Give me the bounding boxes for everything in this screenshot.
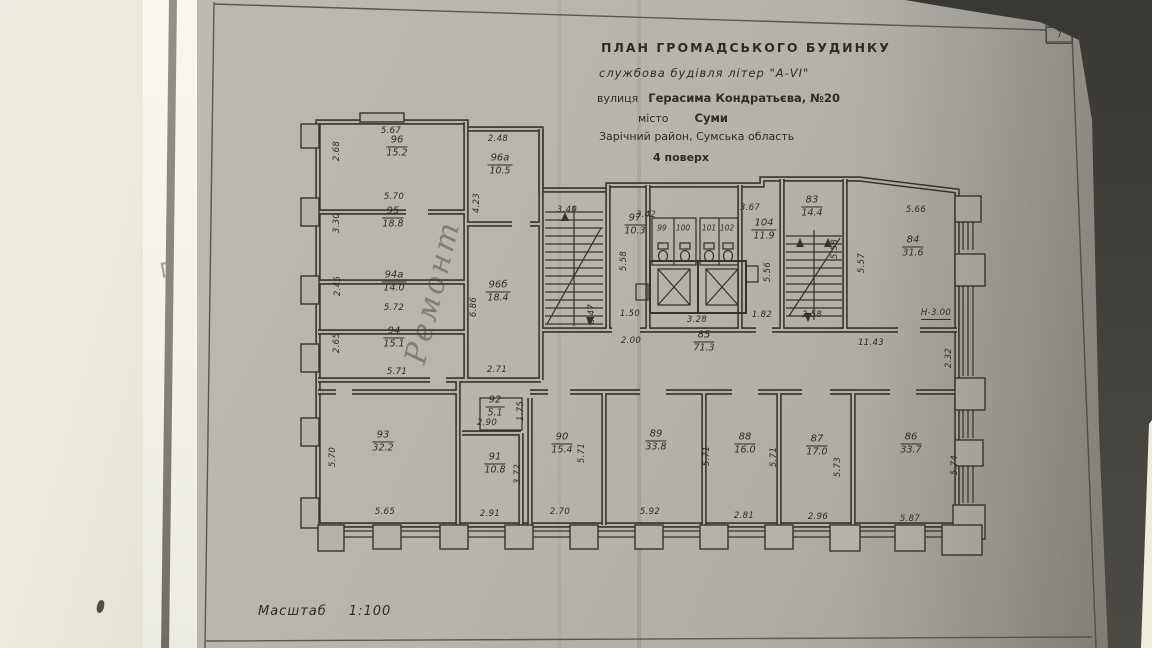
dimension-label: 3.40 xyxy=(557,205,577,215)
room-area: 31.6 xyxy=(902,247,923,258)
room-area: 10.3 xyxy=(624,225,645,236)
room-label: 96б18.4 xyxy=(486,280,511,303)
room-number: 83 xyxy=(801,195,822,207)
room-area: 71.3 xyxy=(693,342,714,353)
dimension-label: 4.23 xyxy=(472,193,482,213)
plan-subtitle: службова будівля літер "А-VI" xyxy=(599,66,809,80)
dimension-label: 2.91 xyxy=(480,509,500,519)
room-area: 33.8 xyxy=(645,441,666,452)
room-area: 17.0 xyxy=(806,446,827,457)
room-number: 88 xyxy=(734,432,755,444)
room-area: 15.4 xyxy=(551,444,572,455)
room-label: 8816.0 xyxy=(734,432,755,455)
room-area: 14.0 xyxy=(382,282,407,293)
dimension-label: 5.70 xyxy=(328,447,338,467)
scale-note: Масштаб1:100 xyxy=(258,604,391,619)
district-line: Зарічний район, Сумська область xyxy=(599,130,794,143)
dimension-label: 5.71 xyxy=(577,443,587,463)
room-area: 5.1 xyxy=(486,407,505,418)
room-label: 8314.4 xyxy=(801,195,822,218)
floor-line: 4 поверх xyxy=(653,151,709,164)
wc-room-number: 101 xyxy=(702,224,716,233)
dimension-label: 2.96 xyxy=(808,512,828,522)
room-label: 9332.2 xyxy=(372,430,393,453)
dimension-label: 2.45 xyxy=(333,276,343,296)
dimension-label: 5.57 xyxy=(857,253,867,273)
room-area: 10.5 xyxy=(488,165,513,176)
city-value: Суми xyxy=(695,111,728,125)
room-number: 86 xyxy=(900,432,921,444)
dimension-label: 2.65 xyxy=(332,333,342,353)
dimension-label: 3.30 xyxy=(332,213,342,233)
dimension-label: 8.47 xyxy=(587,304,597,324)
dimension-label: 1.82 xyxy=(752,310,772,320)
room-label: 9518.8 xyxy=(382,206,403,229)
room-area: 18.8 xyxy=(382,218,403,229)
room-number: 96а xyxy=(488,153,513,165)
room-number: 96б xyxy=(486,280,511,292)
room-area: 16.0 xyxy=(734,444,755,455)
table-surface-left xyxy=(0,0,143,648)
city-line: містоСуми xyxy=(638,111,728,125)
street-label: вулиця xyxy=(597,92,638,105)
wc-room-number: 100 xyxy=(676,224,690,233)
room-number: 90 xyxy=(551,432,572,444)
dimension-label: 5.71 xyxy=(769,447,779,467)
dimension-label: 2.00 xyxy=(621,336,641,346)
dimension-label: 5.71 xyxy=(387,367,407,377)
dimension-label: 5.71 xyxy=(702,446,712,466)
dimension-label: 5.74 xyxy=(950,455,960,475)
street-value: Герасима Кондратьєва, №20 xyxy=(648,91,840,105)
dimension-label: 3.67 xyxy=(740,203,760,213)
dimension-label: 2.71 xyxy=(487,365,507,375)
plan-title: ПЛАН ГРОМАДСЬКОГО БУДИНКУ xyxy=(601,40,891,55)
dimension-label: 5.67 xyxy=(381,126,401,136)
dimension-label: 1.50 xyxy=(620,309,640,319)
dimension-label: H-3.00 xyxy=(921,308,951,320)
city-label: місто xyxy=(638,112,669,125)
room-number: 87 xyxy=(806,434,827,446)
dimension-label: 11.43 xyxy=(858,338,884,348)
dimension-label: 2.81 xyxy=(734,511,754,521)
dimension-label: 3.42 xyxy=(636,210,656,220)
room-label: 8633.7 xyxy=(900,432,921,455)
room-number: 89 xyxy=(645,429,666,441)
room-label: 8933.8 xyxy=(645,429,666,452)
corner-tab: 7 xyxy=(1046,27,1073,44)
dimension-label: 5.65 xyxy=(375,507,395,517)
dimension-label: 5.73 xyxy=(833,457,843,477)
room-label: 10411.9 xyxy=(751,218,776,241)
dimension-label: 6.86 xyxy=(469,297,479,317)
dimension-label: 5.87 xyxy=(900,514,920,524)
room-number: 95 xyxy=(382,206,403,218)
dimension-label: 5.56 xyxy=(763,262,773,282)
room-number: 92 xyxy=(486,395,505,407)
room-area: 11.9 xyxy=(751,230,776,241)
room-area: 33.7 xyxy=(900,444,921,455)
dimension-label: 2.70 xyxy=(550,507,570,517)
room-number: 84 xyxy=(902,235,923,247)
dimension-label: 2.48 xyxy=(488,134,508,144)
dimension-label: 5.70 xyxy=(384,192,404,202)
room-number: 94а xyxy=(382,270,407,282)
dimension-label: 2.58 xyxy=(802,310,822,320)
room-label: 8571.3 xyxy=(693,330,714,353)
room-label: 96а10.5 xyxy=(488,153,513,176)
room-area: 18.4 xyxy=(486,292,511,303)
dimension-label: 1.75 xyxy=(516,401,526,421)
room-number: 85 xyxy=(693,330,714,342)
room-label: 94а14.0 xyxy=(382,270,407,293)
room-number: 104 xyxy=(751,218,776,230)
room-area: 15.2 xyxy=(386,147,407,158)
dimension-label: 5.66 xyxy=(906,205,926,215)
room-label: 9615.2 xyxy=(386,135,407,158)
dimension-label: 3.28 xyxy=(687,315,707,325)
room-area: 32.2 xyxy=(372,442,393,453)
photo-of-floor-plan: 9615.296а10.59518.894а14.09415.196б18.49… xyxy=(0,0,1152,648)
dimension-label: 2.68 xyxy=(332,141,342,161)
scale-label: Масштаб xyxy=(258,604,327,619)
room-number: 96 xyxy=(386,135,407,147)
scale-value: 1:100 xyxy=(349,604,391,619)
room-label: 9015.4 xyxy=(551,432,572,455)
dimension-label: 5.58 xyxy=(830,239,840,259)
wc-room-number: 102 xyxy=(720,224,734,233)
dimension-label: 5.72 xyxy=(384,303,404,313)
room-number: 94 xyxy=(383,326,404,338)
dimension-label: 2.90 xyxy=(477,418,497,428)
room-label: 925.1 xyxy=(486,395,505,418)
wc-room-number: 99 xyxy=(657,224,667,233)
room-number: 93 xyxy=(372,430,393,442)
room-area: 14.4 xyxy=(801,207,822,218)
room-area: 10.8 xyxy=(484,464,505,475)
room-label: 9110.8 xyxy=(484,452,505,475)
dimension-label: 5.58 xyxy=(619,251,629,271)
room-number: 91 xyxy=(484,452,505,464)
room-label: 8431.6 xyxy=(902,235,923,258)
room-label: 8717.0 xyxy=(806,434,827,457)
dimension-label: 2.32 xyxy=(944,348,954,368)
dimension-label: 3.72 xyxy=(513,464,523,484)
address-line: вулицяГерасима Кондратьєва, №20 xyxy=(597,91,840,105)
dimension-label: 5.92 xyxy=(640,507,660,517)
